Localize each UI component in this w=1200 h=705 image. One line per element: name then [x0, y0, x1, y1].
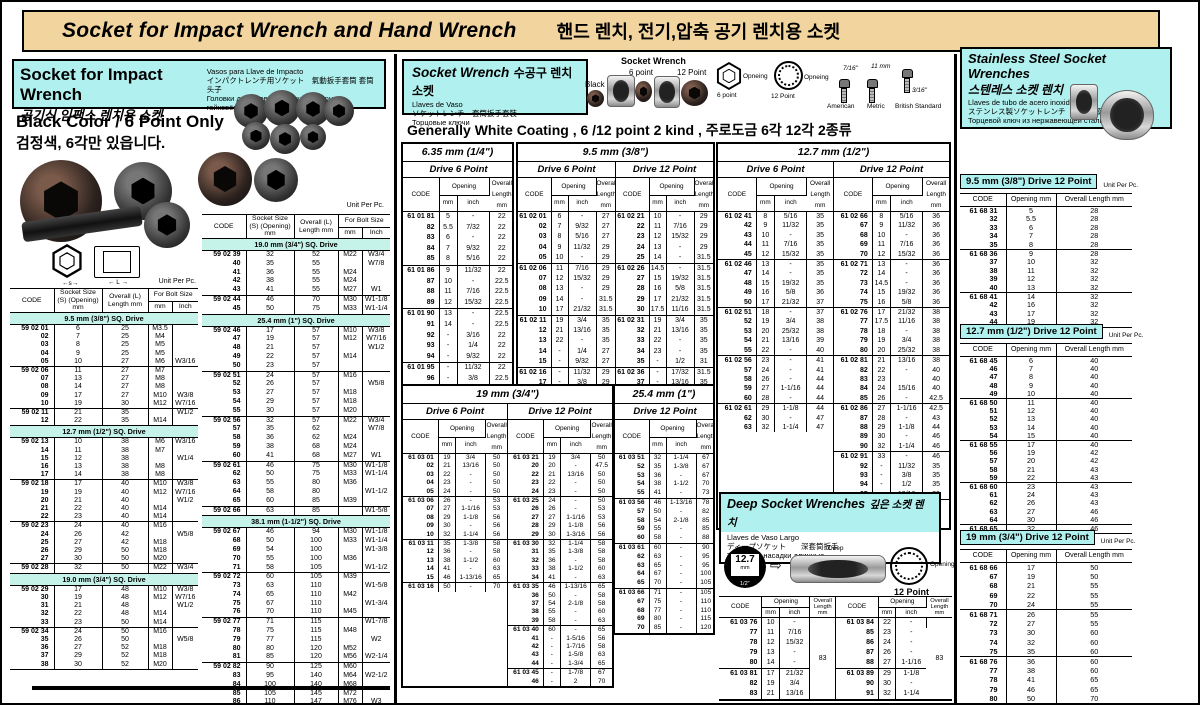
drive-label: Drive 6 Point: [403, 404, 507, 420]
table-row: 61 01 95-11/3222: [403, 363, 514, 374]
sw-title: Socket Wrench: [412, 65, 509, 80]
table-row: 352650W5/8: [10, 636, 198, 644]
table-row: 825.57/3222: [403, 223, 514, 234]
ss-unit-3: Unit Per Pc.: [1101, 538, 1136, 545]
table-row: 2020-47.5: [508, 462, 612, 470]
table-row: 94-1/235: [834, 480, 949, 489]
table-row: 553057M20: [202, 407, 390, 416]
black-color-note-kr: 검정색, 6각만 있읍니다.: [16, 132, 165, 153]
table-row: 3423-35: [616, 347, 713, 357]
table-row: 891215/3222.5: [403, 298, 514, 309]
table-row: 61 68 36928: [960, 250, 1132, 259]
table-row: 61 02 2614.5-31.5: [616, 264, 713, 275]
table-row: 701215/3236: [834, 250, 949, 260]
banner-title-kr: 핸드 렌치, 전기,압축 공기 렌치용 소켓: [557, 18, 840, 44]
table-row: 14-1/427: [518, 347, 615, 357]
drive-table: 12.7 mm (1/2")Drive 6 PointCODEOpeningOv…: [716, 142, 951, 530]
banner-title-en: Socket for Impact Wrench and Hand Wrench: [62, 19, 517, 43]
drive-label: Drive 6 Point: [518, 162, 615, 178]
table-row: 231215/3229: [616, 232, 713, 242]
table-row: 58542-1/885: [615, 517, 715, 526]
table-row: 61 03 21193/450: [508, 454, 612, 463]
table-row: 8710-22.5: [403, 277, 514, 288]
table-row: 61 68 501140: [960, 399, 1132, 408]
table-row: 92-11/3235: [834, 462, 949, 471]
table-size-title: 6.35 mm (1/4"): [403, 144, 512, 162]
table-row: 805070: [960, 694, 1132, 704]
table-row: 2423-50: [508, 488, 612, 497]
table-row: 3650-58: [508, 592, 612, 600]
section-row: 38.1 mm (1-1/2") SQ. Drive: [202, 516, 390, 528]
table-row: 455075M33W1-1/4: [202, 305, 390, 314]
table-row: 59 02 01625M3.5: [10, 325, 198, 334]
drive-label: Drive 12 Point: [834, 162, 949, 178]
ring-12point-icon: [774, 61, 803, 90]
table-row: 291721/3231.5: [616, 295, 713, 305]
table-row: 191940M12W7/16: [10, 489, 198, 497]
table-row: 86110147M76W3: [202, 698, 390, 705]
section-row: 19.0 mm (3/4") SQ. Drive: [10, 573, 198, 585]
table-row: 59 02 393252M22W3/4: [202, 251, 390, 260]
table-row: 15461-13/1665: [403, 574, 507, 583]
table-header-row: CODEOpening mmOverall Length mm: [960, 550, 1132, 563]
table-row: 071215/3229: [518, 274, 615, 284]
table-row: 7875115M48: [202, 627, 390, 636]
table-row: 273050M20: [10, 555, 198, 564]
table-row: 61 01 9013-22.5: [403, 309, 514, 320]
table-row: 61 03 811721/3261 03 89291-1/8: [719, 669, 952, 680]
table-row: 54381-1/270: [615, 480, 715, 489]
table-row: 42911/3235: [718, 221, 833, 230]
table-row: 8479/3222: [403, 244, 514, 255]
table-row: 832113/1691321-1/4: [719, 689, 952, 700]
section-row: 12.7 mm (1/2") SQ. Drive: [10, 426, 198, 438]
table-row: 471957M12W7/16: [202, 335, 390, 344]
table-row: 542957M18: [202, 398, 390, 407]
table-row: 632746: [960, 508, 1132, 516]
table-row: 0510-29: [518, 253, 615, 264]
table-row: 63321-1/447: [718, 423, 833, 432]
table-row: 59 02 563257M22W3/4: [202, 416, 390, 425]
table-row: 67911/3236: [834, 221, 949, 230]
section-row: 25.4 mm (1") SQ. Drive: [202, 314, 390, 326]
table-row: 28165/831.5: [616, 284, 713, 294]
table-row: 61 03 4060-65: [508, 626, 612, 635]
socket-wrench-header: Socket Wrench 수공구 렌치소켓 Llaves de Vaso ソケ…: [402, 59, 588, 115]
table-row: 59 02 444670M30W1-1/8: [202, 295, 390, 304]
table-row: 413655M24: [202, 269, 390, 278]
catalog-page: Socket for Impact Wrench and Hand Wrench…: [0, 0, 1200, 705]
table-row: 27271-1/1653: [508, 514, 612, 522]
table-row: 04925M5: [10, 350, 198, 358]
ring-12point-caption: 12 Point: [771, 93, 795, 100]
table-row: 61 03 6160-90: [615, 543, 715, 552]
table-row: 491040: [960, 390, 1132, 399]
table-row: 34728: [960, 232, 1132, 240]
table-row: 59 02 8290125M60: [202, 663, 390, 672]
american-label: American: [827, 103, 854, 110]
table-row: 5750-82: [615, 508, 715, 517]
table-row: 79193/438: [834, 336, 949, 345]
drive-label: Drive 12 Point: [616, 162, 713, 178]
dim-british: 3/16": [912, 87, 927, 94]
coating-note: Generally White Coating , 6 /12 point 2 …: [407, 120, 852, 140]
table-row: 612443: [960, 491, 1132, 499]
table-row: 3441-63: [508, 574, 612, 583]
table-row: 212240M14: [10, 505, 198, 513]
table-row: 59 02 342450M16: [10, 627, 198, 636]
table-row: 0813-29: [518, 284, 615, 294]
table-row: 582143: [960, 466, 1132, 474]
table-row: 502357: [202, 362, 390, 371]
table-row: 322113/1635: [616, 326, 713, 336]
table-row: 61 03 0626-53: [403, 497, 507, 506]
table-row: 59 02 112135W1/2: [10, 409, 198, 418]
table-row: 5724-41: [718, 366, 833, 375]
table-row: 521340: [960, 415, 1132, 423]
table-row: 04911/3229: [518, 243, 615, 253]
table-row: 604168M27W1: [202, 452, 390, 461]
table-row: 61 02 016-27: [518, 212, 615, 223]
table-row: 61 02 16-11/3229: [518, 368, 615, 379]
table-row: 61 02 5118-37: [718, 308, 833, 318]
table-row: 6570-105: [615, 579, 715, 588]
table-row: 61 68 602343: [960, 483, 1132, 492]
table-row: 8014-88271-1/16: [719, 658, 952, 669]
ss-table-9_5: CODEOpening mmOverall Length mm61 68 315…: [960, 193, 1132, 328]
table-row: 532757M18: [202, 389, 390, 398]
table-row: 61 02 812113/1638: [834, 356, 949, 366]
table-row: 2514-31.5: [616, 253, 713, 264]
table-row: 41-1-5/1656: [508, 635, 612, 643]
table-row: 656085M39: [202, 497, 390, 506]
table-row: 5955-85: [615, 525, 715, 534]
table-row: 6980-115: [615, 615, 715, 624]
table-row: 61 02 761721/3238: [834, 308, 949, 318]
diagram-black-label: Black: [585, 80, 605, 89]
table-row: 61 68 763660: [960, 657, 1132, 667]
drive-size-badge: 12.7 mm 1/2": [724, 546, 766, 588]
table-row: 52193/438: [718, 317, 833, 326]
table-row: 431732: [960, 310, 1132, 318]
table-row: 61 02 4185/1635: [718, 212, 833, 222]
table-row: 61 02 7113-36: [834, 260, 949, 270]
table-row: 13381-1/260: [403, 557, 507, 565]
table-row: 46-270: [508, 678, 612, 686]
table-row: 61 68 31528: [960, 207, 1132, 216]
opening-label-1: Opneing: [743, 73, 768, 80]
table-row: 61 02 36-17/3231.5: [616, 368, 713, 379]
table-row: 434155M27W1: [202, 286, 390, 295]
table-row: 0279/3227: [518, 222, 615, 232]
table-row: 2413-29: [616, 243, 713, 253]
table-row: 0914-31.5: [518, 295, 615, 305]
drive-table: 25.4 mm (1")Drive 12 PointCODEOpeningOve…: [613, 384, 715, 635]
table-row: 802025/3238: [834, 346, 949, 356]
table-row: 61 68 411432: [960, 293, 1132, 302]
ss-table3-head: 19 mm (3/4") Drive 12 Point Unit Per Pc.: [960, 530, 1172, 545]
table-row: 61 02 4613-35: [718, 260, 833, 270]
table-row: 61 02 31193/435: [616, 316, 713, 327]
table-row: 2626-53: [508, 505, 612, 513]
table-row: 59 02 674694M30W1-1/8: [202, 528, 390, 537]
drive-label: Drive 6 Point: [403, 162, 514, 178]
table-row: 61 03 01193/450: [403, 454, 507, 463]
table-row: 61 02 61291-1/844: [718, 404, 833, 414]
table-size-title: 9.5 mm (3/8"): [518, 144, 713, 162]
arrow-icon: ⇨: [770, 557, 782, 574]
table-row: 85105145M72: [202, 690, 390, 699]
table-row: 403555W7/8: [202, 260, 390, 269]
table-row: 43-1-5/863: [508, 651, 612, 659]
table-row: 222340M14: [10, 513, 198, 522]
deep-socket-table: CODEOpeningOverall Length mmCODEOpeningO…: [719, 596, 952, 701]
table-row: 583662M24: [202, 434, 390, 443]
table-row: 222113/1650: [508, 471, 612, 479]
drive-label: Drive 6 Point: [718, 162, 833, 178]
table-row: 753560: [960, 647, 1132, 657]
table-row: 59 02 461757M10W3/8: [202, 326, 390, 335]
british-standard-label: British Standard: [895, 103, 941, 110]
table-row: 61 02 6685/1636: [834, 212, 949, 222]
table-row: 071327M8: [10, 375, 198, 383]
divider-left-middle: [394, 54, 397, 705]
table-row: 122235M14: [10, 417, 198, 426]
table-row: 832340: [834, 375, 949, 384]
table-row: 61 03 35461-13/1665: [508, 583, 612, 592]
table-row: 33628: [960, 224, 1132, 232]
ss-table1-title: 9.5 mm (3/8") Drive 12 Point: [960, 174, 1097, 189]
impact-lang-es: Vasos para Llave de Impacto: [207, 67, 378, 76]
table-row: 59 02 666385W1-5/8: [202, 506, 390, 516]
table-row: 8930-46: [834, 432, 949, 441]
deep-12point-icon: [890, 547, 928, 585]
hex-opening-diagram-icon: [50, 244, 84, 278]
left-bottom-rule: [32, 686, 390, 690]
table-row: 8728-43: [834, 414, 949, 423]
table-row: 101930M12W7/16: [10, 400, 198, 409]
table-row: 492257M14: [202, 353, 390, 362]
table-row: 522657W5/8: [202, 380, 390, 389]
table-row: 7717.511/1638: [834, 317, 949, 326]
ss-unit-2: Unit Per Pc.: [1109, 332, 1144, 339]
table-row: 61 03 45-1-7/867: [508, 669, 612, 678]
table-row: 88117/1622.5: [403, 287, 514, 298]
table-row: 0322-50: [403, 471, 507, 479]
dim-american: 7/16": [843, 65, 858, 72]
table-row: 5336-67: [615, 472, 715, 481]
table-row: 7055100M36: [202, 555, 390, 564]
table-row: 59 02 7771115W1-7/8: [202, 618, 390, 627]
table-9_5mm: 9.5 mm (3/8")Drive 6 PointCODEOpeningOve…: [516, 142, 715, 401]
diagram-socket-wrench-label: Socket Wrench: [621, 57, 686, 66]
table-row: 593868M24: [202, 443, 390, 452]
table-row: 421632: [960, 301, 1132, 309]
table-row: 59 02 131038M6W3/16: [10, 438, 198, 447]
table-row: 6954100W1-3/8: [202, 546, 390, 555]
table-row: 6058-88: [615, 534, 715, 543]
table-row: 8222-40: [834, 366, 949, 375]
socket-type-diagram: Socket Wrench 6 point 12 Point Black 6 p…: [577, 57, 952, 119]
deep-lang-es: Llaves de Vaso Largo: [727, 533, 933, 542]
table-row: 8395140M64W2-1/2: [202, 672, 390, 681]
table-size-title: 19 mm (3/4"): [403, 386, 612, 404]
ss-table2-head: 12.7 mm (1/2") Drive 12 Point Unit Per P…: [960, 324, 1172, 339]
impact-table-1: CODESocket Size (S) (Opening) mmOverall …: [10, 288, 198, 670]
table-row: 122113/1635: [518, 326, 615, 336]
section-row: 9.5 mm (3/8") SQ. Drive: [10, 313, 198, 325]
table-row: 8185120M56W2-1/4: [202, 653, 390, 662]
table-row: 781215/328624-: [719, 638, 952, 648]
table-row: 59 02 181740M10W3/8: [10, 480, 198, 489]
table-row: 44117/1635: [718, 240, 833, 249]
table-row: 03825M5: [10, 341, 198, 349]
table-row: 051027M6W3/16: [10, 358, 198, 367]
table-row: 784165: [960, 675, 1132, 684]
table-12_7mm: 12.7 mm (1/2")Drive 6 PointCODEOpeningOv…: [716, 142, 951, 530]
impact-table: CODESocket Size (S) (Opening) mmOverall …: [202, 214, 390, 705]
hexagon-6point-icon: [715, 62, 743, 90]
unit-label-1: Unit Per Pc.: [130, 278, 196, 285]
table-row: 1322-35: [518, 336, 615, 346]
table-row: 1441-63: [403, 565, 507, 573]
table-19mm: 19 mm (3/4")Drive 6 PointCODEOpeningOver…: [401, 384, 614, 688]
table-row: 88291-1/844: [834, 423, 949, 432]
table-row: 1236-58: [403, 548, 507, 556]
table-row: 242642W5/8: [10, 531, 198, 539]
table-row: 482157W1/2: [202, 344, 390, 353]
table-row: 61 03 2524-50: [508, 497, 612, 506]
table-row: 52351-3/867: [615, 463, 715, 472]
deep-socket-diagram: 12.7 mm 1/2" ⇨ Deep Opening 12 Point: [720, 545, 952, 595]
table-row: 391232: [960, 275, 1132, 283]
table-row: 371032: [960, 258, 1132, 266]
ss-table-19: CODEOpening mmOverall Length mm61 68 661…: [960, 549, 1132, 704]
table-row: 3017.511/1631.5: [616, 305, 713, 316]
table-row: 3236-58: [508, 557, 612, 565]
table-row: 271519/3231.5: [616, 274, 713, 284]
impact-table-2: CODESocket Size (S) (Opening) mmOverall …: [202, 214, 390, 705]
table-row: 0423-50: [403, 479, 507, 487]
table-row: 61 03 6671-105: [615, 588, 715, 597]
table-row: 94-9/3222: [403, 352, 514, 363]
table-row: 322248M14: [10, 610, 198, 618]
diagram-12point-label: 12 Point: [677, 68, 706, 77]
table-row: 6877-110: [615, 607, 715, 616]
table-row: 6028-44: [718, 394, 833, 404]
table-row: 7085-120: [615, 624, 715, 633]
table-row: 501721/3237: [718, 298, 833, 308]
table-row: 743260: [960, 638, 1132, 647]
ss-title: Stainless Steel Socket Wrenches: [968, 51, 1164, 81]
table-row: 202140W1/2: [10, 497, 198, 505]
table-row: 7363110W1-5/8: [202, 582, 390, 591]
table-row: 93-1/422: [403, 341, 514, 352]
dim-metric: 11 mm: [871, 63, 890, 70]
table-row: 61 01 86911/3222: [403, 265, 514, 276]
table-row: 692255: [960, 591, 1132, 600]
table-row: 90321-1/446: [834, 442, 949, 452]
table-row: 0385/1627: [518, 232, 615, 242]
table-row: 592243: [960, 474, 1132, 483]
table-row: 6467-100: [615, 570, 715, 579]
table-row: 842415/1640: [834, 384, 949, 393]
ss-unit-1: Unit Per Pc.: [1103, 182, 1138, 189]
table-row: 61 02 5623-41: [718, 356, 833, 366]
table-row: 401332: [960, 284, 1132, 293]
table-row: 8585/1622: [403, 254, 514, 265]
table-row: 8526-42.5: [834, 394, 949, 404]
table-6_35mm: 6.35 mm (1/4")Drive 6 PointCODEOpeningOv…: [401, 142, 514, 387]
section-row: 19.0 mm (3/4") SQ. Drive: [202, 239, 390, 251]
ss-table1-head: 9.5 mm (3/8") Drive 12 Point Unit Per Pc…: [960, 174, 1172, 189]
table-row: 3958-63: [508, 617, 612, 626]
divider-middle-right: [954, 54, 957, 705]
sw-lang-jp: ソケットレンチ 套筒扳手套裝: [412, 109, 578, 118]
table-row: 7214-36: [834, 269, 949, 278]
table-row: 75165/836: [834, 298, 949, 308]
table-row: 625075M33W1-1/4: [202, 470, 390, 479]
table-row: 3322-35: [616, 336, 713, 346]
table-row: 35-1/231: [616, 357, 713, 368]
bolt-american-icon: [839, 79, 850, 103]
table-row: 61 68 661750: [960, 563, 1132, 573]
ss-table3-title: 19 mm (3/4") Drive 12 Point: [960, 530, 1095, 545]
impact-table: CODESocket Size (S) (Opening) mmOverall …: [10, 288, 198, 670]
table-row: 372952M18: [10, 652, 198, 660]
table-row: 5826-44: [718, 375, 833, 384]
table-row: 61 03 51321-1/467: [615, 454, 715, 463]
table-row: 9114-22.5: [403, 320, 514, 331]
impact-title: Socket for Impact Wrench: [20, 65, 199, 105]
drive-table: 6.35 mm (1/4")Drive 6 PointCODEOpeningOv…: [401, 142, 514, 387]
table-size-title: 25.4 mm (1"): [615, 386, 713, 404]
deep-title: Deep Socket Wrenches: [727, 497, 865, 511]
table-row: 33381-1/260: [508, 565, 612, 573]
drive-label: Drive 12 Point: [615, 404, 715, 420]
table-row: 332350M14: [10, 619, 198, 628]
page-banner: Socket for Impact Wrench and Hand Wrench…: [22, 10, 1160, 52]
table-row: 773860: [960, 666, 1132, 675]
table-row: 161338M8: [10, 463, 198, 471]
table-row: 6230-47: [718, 414, 833, 423]
table-25_4mm: 25.4 mm (1")Drive 12 PointCODEOpeningOve…: [613, 384, 715, 635]
table-row: 022113/1650: [403, 462, 507, 470]
table-row: 7818-38: [834, 327, 949, 336]
table-row: 561942: [960, 449, 1132, 457]
table-row: 4310-35: [718, 231, 833, 240]
table-row: 59 02 512457M16: [202, 371, 390, 380]
table-header-row: CODEOpening mmOverall Length mm: [960, 344, 1132, 357]
table-row: 46740: [960, 365, 1132, 373]
ss-table2-title: 12.7 mm (1/2") Drive 12 Point: [960, 324, 1103, 339]
table-row: 28291-1/856: [508, 522, 612, 530]
table-row: 6775-110: [615, 598, 715, 607]
table-row: 48940: [960, 382, 1132, 390]
sw-lang-es: Llaves de Vaso: [412, 100, 578, 109]
table-row: 171438M8: [10, 471, 198, 480]
table-row: 312148W1/2: [10, 602, 198, 610]
table-row: 61 03 56461-13/1678: [615, 498, 715, 507]
table-row: 31351-3/858: [508, 548, 612, 556]
l-dim-label: ← L →: [108, 279, 128, 286]
table-row: 61 68 551740: [960, 441, 1132, 450]
table-row: 7158105W1-1/2: [202, 564, 390, 573]
table-row: 29301-3/1656: [508, 531, 612, 540]
table-row: 02725M4: [10, 333, 198, 341]
table-row: 101721/3231.5: [518, 305, 615, 316]
table-row: 61 02 86271-1/1642.5: [834, 404, 949, 414]
